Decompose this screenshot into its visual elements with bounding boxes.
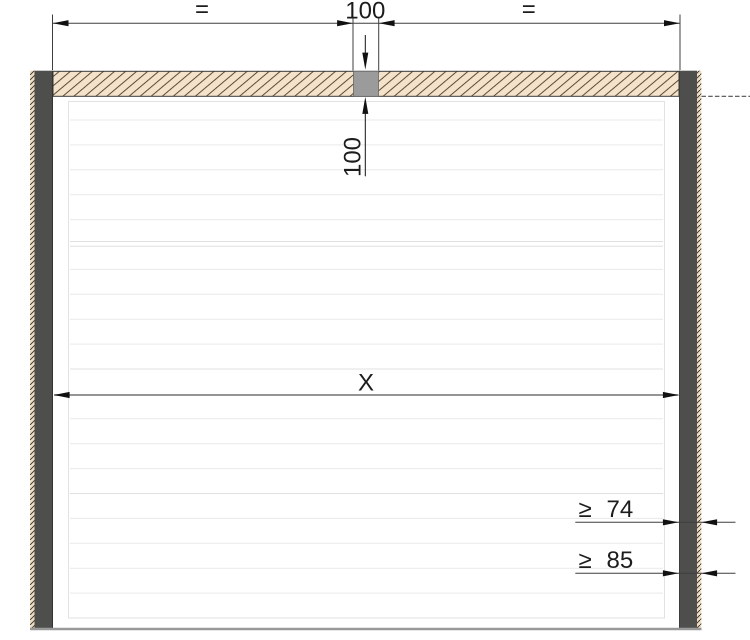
svg-text:≥: ≥ (579, 496, 592, 523)
svg-text:74: 74 (607, 496, 634, 523)
svg-text:85: 85 (607, 547, 634, 574)
svg-text:=: = (522, 0, 536, 23)
svg-text:X: X (358, 370, 374, 397)
svg-text:=: = (195, 0, 209, 23)
svg-text:≥: ≥ (579, 547, 592, 574)
svg-text:100: 100 (340, 137, 367, 177)
svg-text:100: 100 (345, 0, 385, 25)
